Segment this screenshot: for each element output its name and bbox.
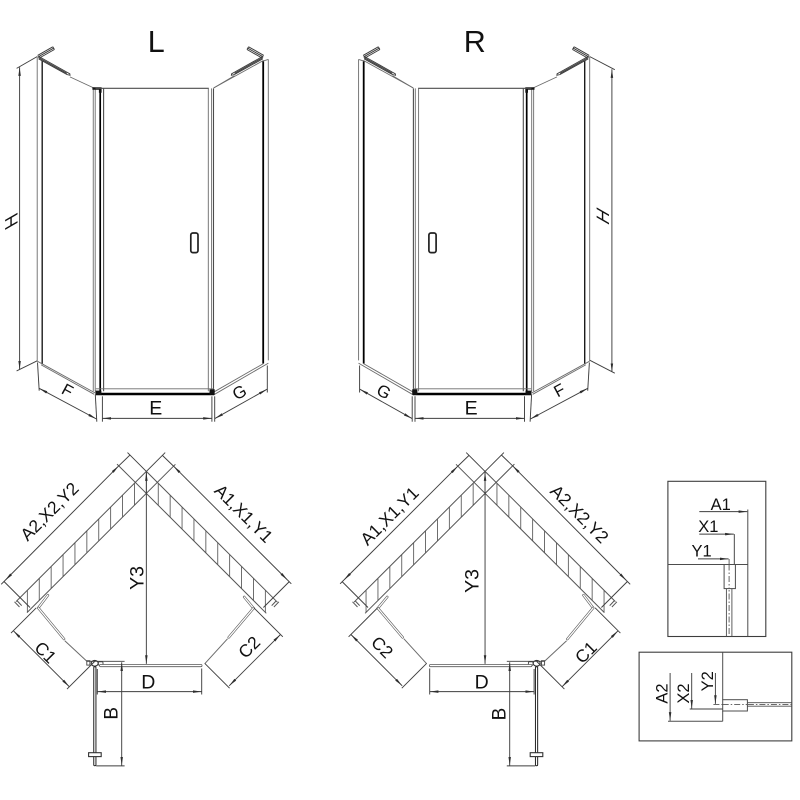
svg-text:D: D (475, 672, 489, 694)
svg-text:B: B (102, 707, 123, 720)
svg-text:X2: X2 (675, 683, 693, 703)
svg-text:E: E (149, 398, 162, 420)
svg-text:X1: X1 (698, 518, 718, 536)
svg-text:R: R (464, 25, 486, 59)
svg-text:A2: A2 (654, 683, 672, 703)
svg-text:Y3: Y3 (461, 569, 483, 593)
svg-text:B: B (489, 708, 510, 721)
svg-text:E: E (465, 398, 478, 420)
svg-text:L: L (148, 25, 165, 59)
svg-text:Y3: Y3 (126, 566, 148, 590)
svg-text:D: D (141, 672, 155, 694)
svg-text:Y1: Y1 (692, 543, 712, 561)
svg-text:A1: A1 (711, 496, 731, 514)
svg-text:Y2: Y2 (699, 671, 717, 691)
